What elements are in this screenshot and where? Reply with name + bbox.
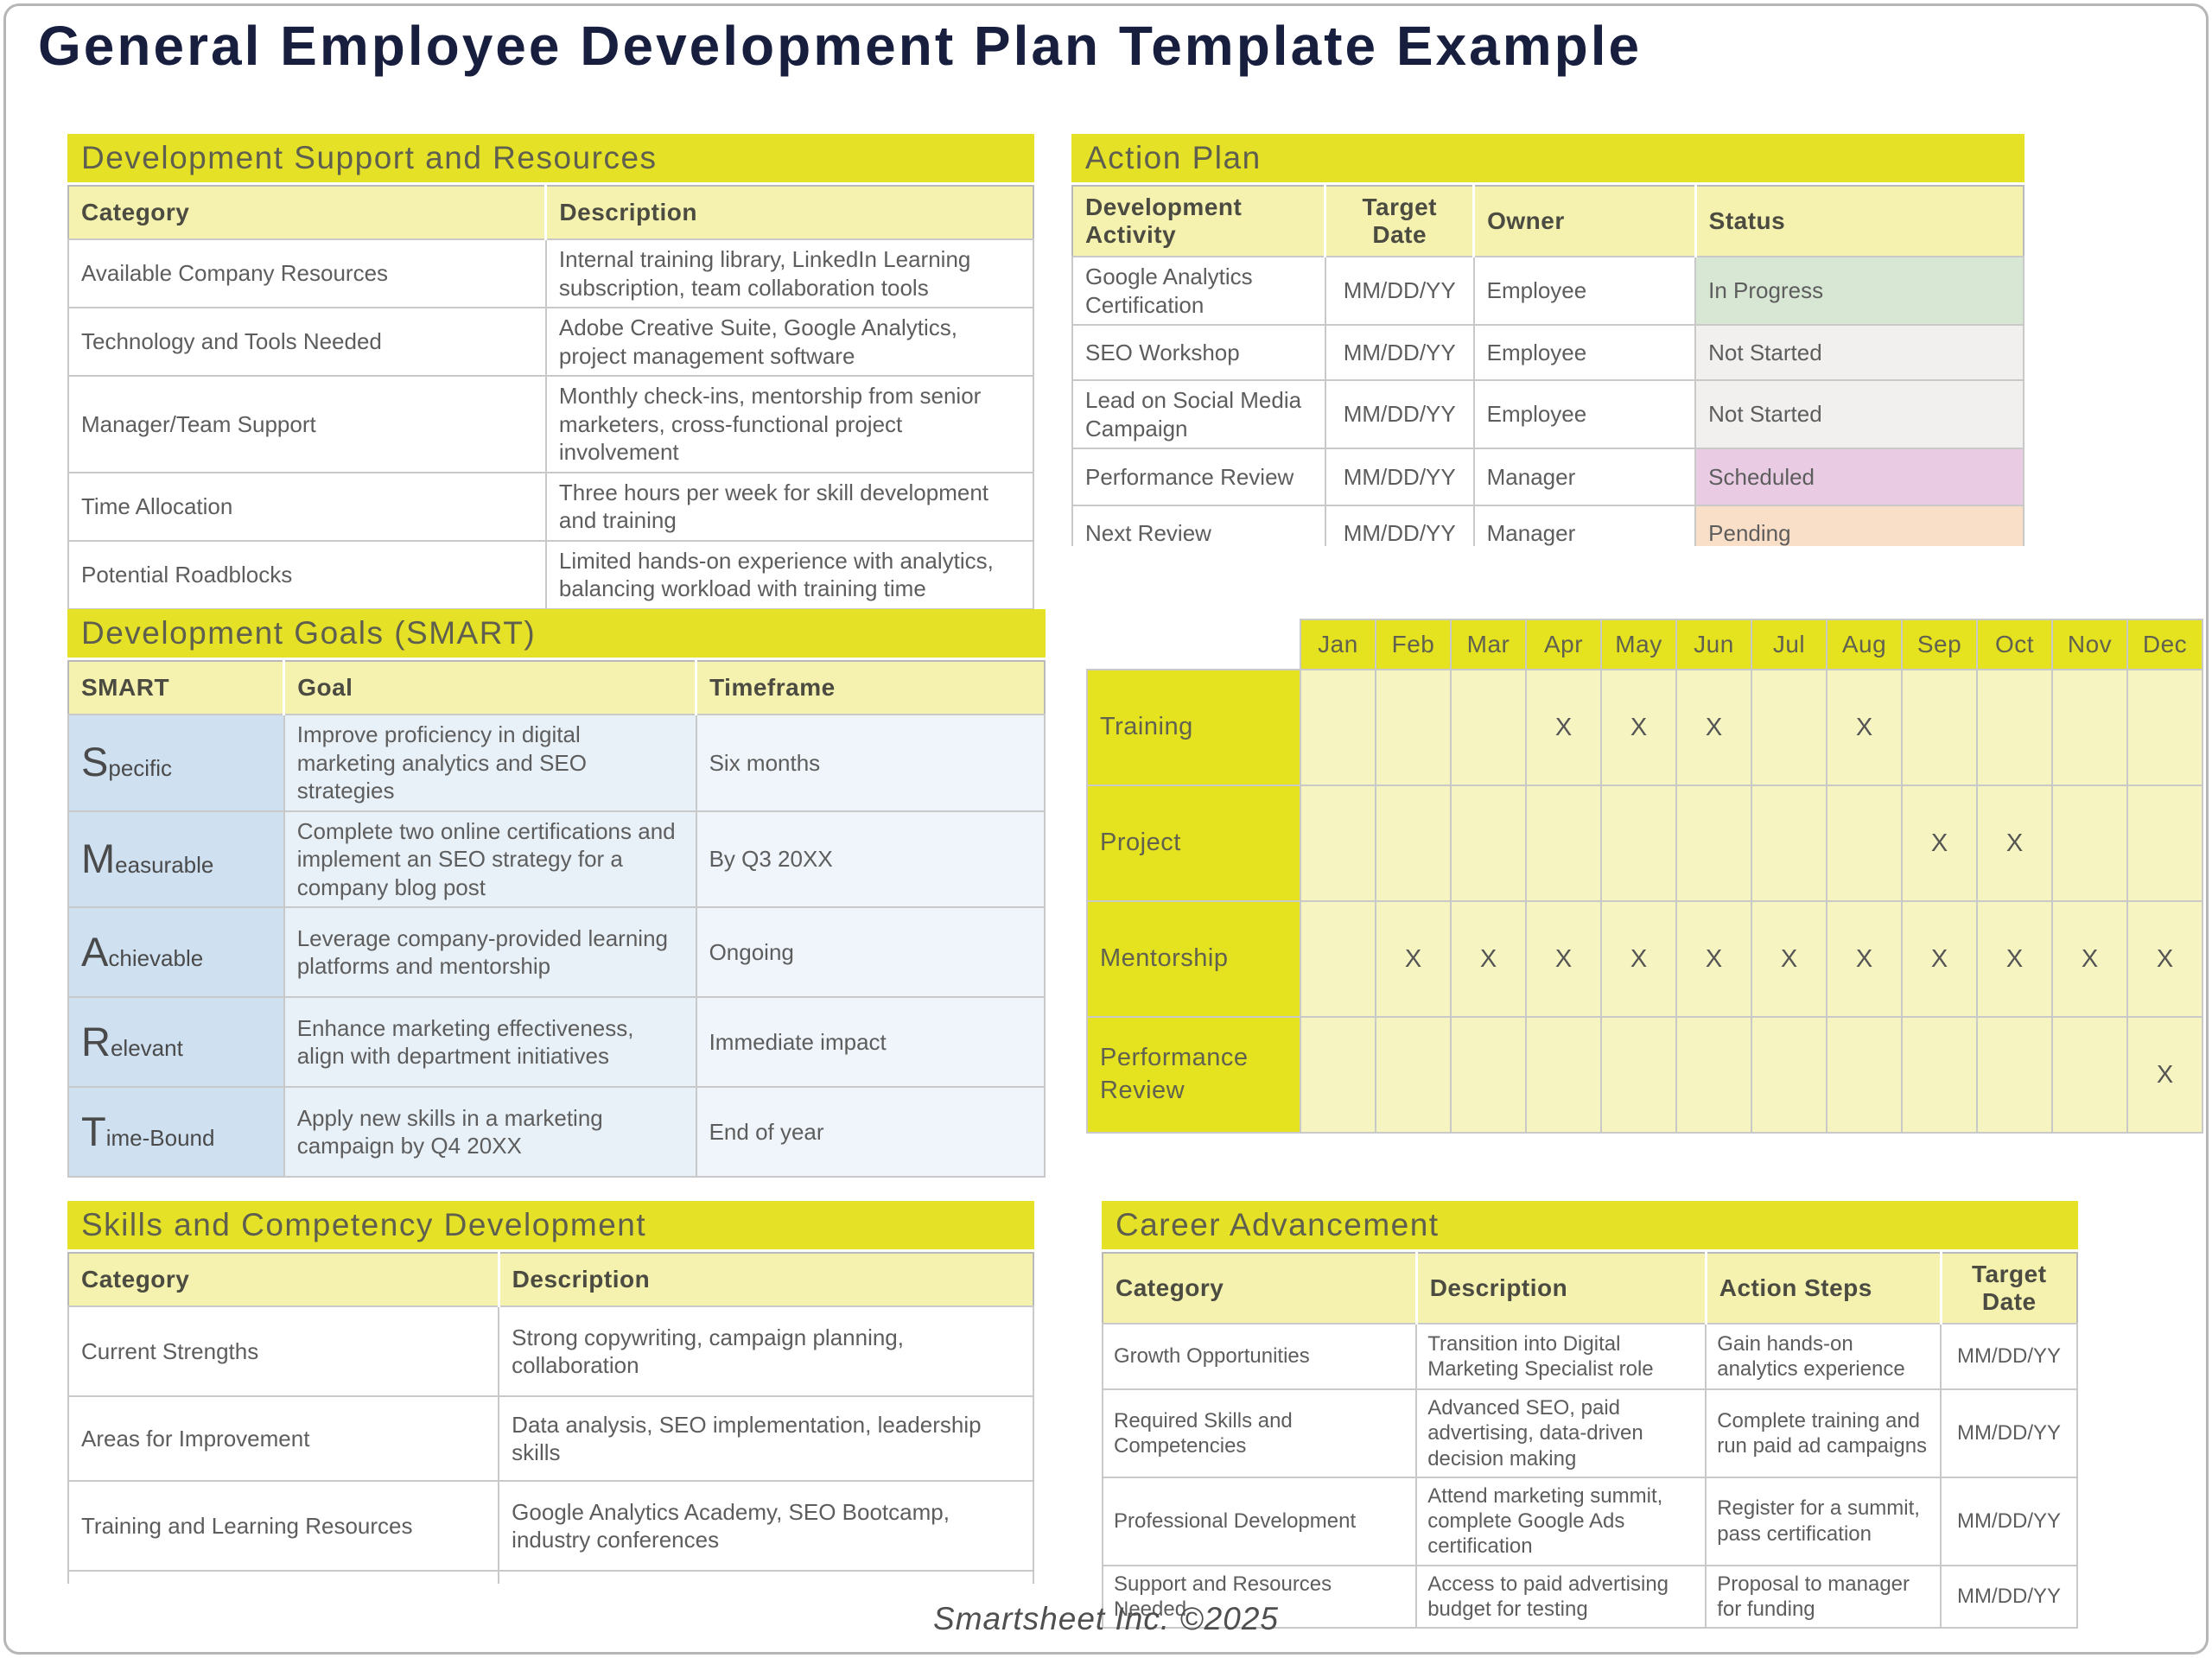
matrix-cell: X — [2052, 901, 2127, 1017]
month-header: Jul — [1751, 619, 1827, 670]
matrix-cell — [1601, 1017, 1676, 1133]
matrix-row: Mentorship XXXXXXXXXXX — [1087, 901, 2202, 1017]
smart-letter-cell: Achievable — [68, 907, 284, 997]
matrix-cell — [1300, 1017, 1376, 1133]
table-row: RelevantEnhance marketing effectiveness,… — [68, 997, 1045, 1087]
action-steps-cell: Register for a summit, pass certificatio… — [1706, 1477, 1941, 1566]
smart-letter-cell: Relevant — [68, 997, 284, 1087]
month-header: Mar — [1451, 619, 1526, 670]
description-cell: Attend marketing summit, complete Google… — [1416, 1477, 1706, 1566]
table-row: Manager/Team SupportMonthly check-ins, m… — [68, 376, 1033, 473]
timeframe-cell: Six months — [696, 715, 1045, 811]
month-header: Nov — [2052, 619, 2127, 670]
description-cell: Advanced SEO, paid advertising, data-dri… — [1416, 1389, 1706, 1477]
target-date-cell: MM/DD/YY — [1325, 380, 1474, 448]
table-row: MeasurableComplete two online certificat… — [68, 811, 1045, 908]
matrix-cell — [1977, 670, 2052, 785]
target-date-cell: MM/DD/YY — [1325, 448, 1474, 505]
timeframe-cell: End of year — [696, 1087, 1045, 1177]
matrix-cell: X — [1977, 901, 2052, 1017]
matrix-cell — [1300, 901, 1376, 1017]
description-cell: Three hours per week for skill developme… — [546, 473, 1033, 541]
activity-cell: Next Review — [1072, 505, 1325, 546]
header-row: Category Description Action Steps Target… — [1103, 1253, 2077, 1324]
description-cell: Internal training library, LinkedIn Lear… — [546, 239, 1033, 308]
month-header: Apr — [1526, 619, 1601, 670]
matrix-corner-cell — [1087, 619, 1300, 670]
action-steps-cell: Complete training and run paid ad campai… — [1706, 1389, 1941, 1477]
matrix-cell — [1300, 670, 1376, 785]
column-header-status: Status — [1695, 186, 2024, 257]
column-header-smart: SMART — [68, 661, 284, 715]
description-cell: Monthly check-ins, mentorship from senio… — [546, 376, 1033, 473]
smart-letter-cell: Measurable — [68, 811, 284, 908]
category-cell: Available Company Resources — [68, 239, 546, 308]
target-date-cell: MM/DD/YY — [1325, 505, 1474, 546]
activity-schedule-matrix: Jan Feb Mar Apr May Jun Jul Aug Sep Oct … — [1086, 619, 2203, 1134]
category-cell: Technology and Tools Needed — [68, 308, 546, 376]
matrix-cell — [1526, 785, 1601, 901]
column-header-category: Category — [68, 1253, 499, 1306]
action-plan-section: Action Plan Development Activity Target … — [1071, 134, 2024, 546]
header-row: Category Description — [68, 1253, 1033, 1306]
owner-cell: Employee — [1474, 257, 1696, 325]
category-cell: Time Allocation — [68, 473, 546, 541]
matrix-cell: X — [1827, 901, 1902, 1017]
goal-cell: Apply new skills in a marketing campaign… — [284, 1087, 696, 1177]
support-resources-section: Development Support and Resources Catego… — [67, 134, 1034, 610]
matrix-cell — [1977, 1017, 2052, 1133]
footer-attribution: Smartsheet Inc. ©2025 — [0, 1601, 2212, 1637]
timeframe-cell: By Q3 20XX — [696, 811, 1045, 908]
career-advancement-section: Career Advancement Category Description … — [1102, 1201, 2078, 1629]
table-row: Areas for ImprovementData analysis, SEO … — [68, 1396, 1033, 1481]
matrix-row-label: Mentorship — [1087, 901, 1300, 1017]
category-cell: Required Skills and Competencies — [1103, 1389, 1416, 1477]
table-row: Potential RoadblocksLimited hands-on exp… — [68, 541, 1033, 609]
matrix-cell: X — [1902, 901, 1977, 1017]
column-header-category: Category — [68, 186, 546, 239]
month-header: Aug — [1827, 619, 1902, 670]
category-cell: Growth Opportunities — [1103, 1324, 1416, 1389]
month-header: Feb — [1376, 619, 1451, 670]
month-header: Dec — [2127, 619, 2202, 670]
matrix-cell — [1676, 1017, 1751, 1133]
goal-cell: Improve proficiency in digital marketing… — [284, 715, 696, 811]
page-title: General Employee Development Plan Templa… — [38, 14, 1642, 78]
activity-cell: Google Analytics Certification — [1072, 257, 1325, 325]
table-row: Technology and Tools NeededAdobe Creativ… — [68, 308, 1033, 376]
category-cell: Potential Roadblocks — [68, 541, 546, 609]
month-header: May — [1601, 619, 1676, 670]
target-date-cell: MM/DD/YY — [1325, 257, 1474, 325]
matrix-cell: X — [1902, 785, 1977, 901]
month-header: Oct — [1977, 619, 2052, 670]
action-steps-cell: Gain hands-on analytics experience — [1706, 1324, 1941, 1389]
description-cell: Limited hands-on experience with analyti… — [546, 541, 1033, 609]
column-header-target-date: Target Date — [1325, 186, 1474, 257]
table-row: SpecificImprove proficiency in digital m… — [68, 715, 1045, 811]
category-cell: Manager/Team Support — [68, 376, 546, 473]
table-row: Time AllocationThree hours per week for … — [68, 473, 1033, 541]
table-row: Performance ReviewMM/DD/YYManagerSchedul… — [1072, 448, 2024, 505]
header-row: Category Description — [68, 186, 1033, 239]
skills-competency-section: Skills and Competency Development Catego… — [67, 1201, 1034, 1584]
matrix-cell: X — [1676, 901, 1751, 1017]
owner-cell: Manager — [1474, 505, 1696, 546]
support-resources-table: Category Description Available Company R… — [67, 185, 1034, 610]
table-row: Google Analytics CertificationMM/DD/YYEm… — [1072, 257, 2024, 325]
table-row: Training and Learning ResourcesGoogle An… — [68, 1481, 1033, 1571]
table-row-partial — [68, 1571, 1033, 1584]
table-row: AchievableLeverage company-provided lear… — [68, 907, 1045, 997]
matrix-cell — [1751, 670, 1827, 785]
column-header-goal: Goal — [284, 661, 696, 715]
smart-goals-table: SMART Goal Timeframe SpecificImprove pro… — [67, 660, 1046, 1178]
table-row: Available Company ResourcesInternal trai… — [68, 239, 1033, 308]
matrix-cell: X — [1526, 901, 1601, 1017]
matrix-cell: X — [1827, 670, 1902, 785]
table-row: Professional DevelopmentAttend marketing… — [1103, 1477, 2077, 1566]
category-cell: Training and Learning Resources — [68, 1481, 499, 1571]
section-title-bar: Development Goals (SMART) — [67, 609, 1046, 657]
schedule-matrix-table: Jan Feb Mar Apr May Jun Jul Aug Sep Oct … — [1086, 619, 2203, 1134]
matrix-row-label: Training — [1087, 670, 1300, 785]
matrix-row-label: Project — [1087, 785, 1300, 901]
matrix-cell — [1751, 1017, 1827, 1133]
table-row: Growth OpportunitiesTransition into Digi… — [1103, 1324, 2077, 1389]
matrix-cell — [2127, 670, 2202, 785]
matrix-cell: X — [1376, 901, 1451, 1017]
matrix-cell — [2127, 785, 2202, 901]
matrix-row: Training XXXX — [1087, 670, 2202, 785]
matrix-cell — [2052, 785, 2127, 901]
career-advancement-table: Category Description Action Steps Target… — [1102, 1252, 2078, 1629]
category-cell: Professional Development — [1103, 1477, 1416, 1566]
description-cell: Google Analytics Academy, SEO Bootcamp, … — [499, 1481, 1033, 1571]
status-cell: Not Started — [1695, 380, 2024, 448]
table-row: Time-BoundApply new skills in a marketin… — [68, 1087, 1045, 1177]
matrix-cell — [1376, 670, 1451, 785]
matrix-header-row: Jan Feb Mar Apr May Jun Jul Aug Sep Oct … — [1087, 619, 2202, 670]
target-date-cell: MM/DD/YY — [1325, 325, 1474, 380]
header-row: SMART Goal Timeframe — [68, 661, 1045, 715]
column-header-description: Description — [1416, 1253, 1706, 1324]
column-header-description: Description — [546, 186, 1033, 239]
matrix-cell — [1902, 670, 1977, 785]
column-header-activity: Development Activity — [1072, 186, 1325, 257]
matrix-cell: X — [2127, 901, 2202, 1017]
matrix-cell — [1376, 1017, 1451, 1133]
matrix-cell — [1827, 785, 1902, 901]
column-header-action-steps: Action Steps — [1706, 1253, 1941, 1324]
matrix-cell — [1451, 785, 1526, 901]
matrix-cell: X — [1977, 785, 2052, 901]
activity-cell: Lead on Social Media Campaign — [1072, 380, 1325, 448]
matrix-cell — [2052, 670, 2127, 785]
target-date-cell: MM/DD/YY — [1941, 1324, 2077, 1389]
status-cell: In Progress — [1695, 257, 2024, 325]
matrix-cell — [1451, 1017, 1526, 1133]
table-row: Next ReviewMM/DD/YYManagerPending — [1072, 505, 2024, 546]
description-cell: Adobe Creative Suite, Google Analytics, … — [546, 308, 1033, 376]
matrix-cell: X — [1676, 670, 1751, 785]
timeframe-cell: Immediate impact — [696, 997, 1045, 1087]
matrix-cell — [1676, 785, 1751, 901]
column-header-category: Category — [1103, 1253, 1416, 1324]
matrix-cell — [2052, 1017, 2127, 1133]
matrix-cell: X — [1751, 901, 1827, 1017]
matrix-cell: X — [1601, 670, 1676, 785]
smart-letter-cell: Specific — [68, 715, 284, 811]
owner-cell: Employee — [1474, 380, 1696, 448]
category-cell: Areas for Improvement — [68, 1396, 499, 1481]
section-title-bar: Development Support and Resources — [67, 134, 1034, 182]
column-header-description: Description — [499, 1253, 1033, 1306]
month-header: Jun — [1676, 619, 1751, 670]
description-cell: Strong copywriting, campaign planning, c… — [499, 1306, 1033, 1396]
section-title-bar: Career Advancement — [1102, 1201, 2078, 1249]
target-date-cell: MM/DD/YY — [1941, 1389, 2077, 1477]
column-header-timeframe: Timeframe — [696, 661, 1045, 715]
smart-letter-cell: Time-Bound — [68, 1087, 284, 1177]
matrix-cell — [1751, 785, 1827, 901]
skills-competency-table: Category Description Current StrengthsSt… — [67, 1252, 1034, 1584]
description-cell: Data analysis, SEO implementation, leade… — [499, 1396, 1033, 1481]
matrix-cell — [1300, 785, 1376, 901]
matrix-cell — [1451, 670, 1526, 785]
column-header-target-date: Target Date — [1941, 1253, 2077, 1324]
month-header: Sep — [1902, 619, 1977, 670]
matrix-cell: X — [1601, 901, 1676, 1017]
matrix-row: Performance Review X — [1087, 1017, 2202, 1133]
status-cell: Scheduled — [1695, 448, 2024, 505]
matrix-row-label: Performance Review — [1087, 1017, 1300, 1133]
table-row: SEO WorkshopMM/DD/YYEmployeeNot Started — [1072, 325, 2024, 380]
table-row: Required Skills and CompetenciesAdvanced… — [1103, 1389, 2077, 1477]
matrix-cell — [1601, 785, 1676, 901]
owner-cell: Manager — [1474, 448, 1696, 505]
timeframe-cell: Ongoing — [696, 907, 1045, 997]
matrix-cell — [1526, 1017, 1601, 1133]
target-date-cell: MM/DD/YY — [1941, 1477, 2077, 1566]
activity-cell: SEO Workshop — [1072, 325, 1325, 380]
description-cell: Transition into Digital Marketing Specia… — [1416, 1324, 1706, 1389]
matrix-cell: X — [1451, 901, 1526, 1017]
matrix-cell — [1827, 1017, 1902, 1133]
owner-cell: Employee — [1474, 325, 1696, 380]
matrix-row: Project XX — [1087, 785, 2202, 901]
matrix-cell: X — [2127, 1017, 2202, 1133]
table-row: Lead on Social Media CampaignMM/DD/YYEmp… — [1072, 380, 2024, 448]
matrix-cell — [1376, 785, 1451, 901]
table-row: Current StrengthsStrong copywriting, cam… — [68, 1306, 1033, 1396]
header-row: Development Activity Target Date Owner S… — [1072, 186, 2024, 257]
action-plan-table: Development Activity Target Date Owner S… — [1071, 185, 2024, 546]
goal-cell: Enhance marketing effectiveness, align w… — [284, 997, 696, 1087]
section-title-bar: Action Plan — [1071, 134, 2024, 182]
month-header: Jan — [1300, 619, 1376, 670]
matrix-cell: X — [1526, 670, 1601, 785]
category-cell: Current Strengths — [68, 1306, 499, 1396]
smart-goals-section: Development Goals (SMART) SMART Goal Tim… — [67, 609, 1046, 1178]
status-cell: Pending — [1695, 505, 2024, 546]
goal-cell: Leverage company-provided learning platf… — [284, 907, 696, 997]
goal-cell: Complete two online certifications and i… — [284, 811, 696, 908]
column-header-owner: Owner — [1474, 186, 1696, 257]
matrix-cell — [1902, 1017, 1977, 1133]
section-title-bar: Skills and Competency Development — [67, 1201, 1034, 1249]
activity-cell: Performance Review — [1072, 448, 1325, 505]
status-cell: Not Started — [1695, 325, 2024, 380]
